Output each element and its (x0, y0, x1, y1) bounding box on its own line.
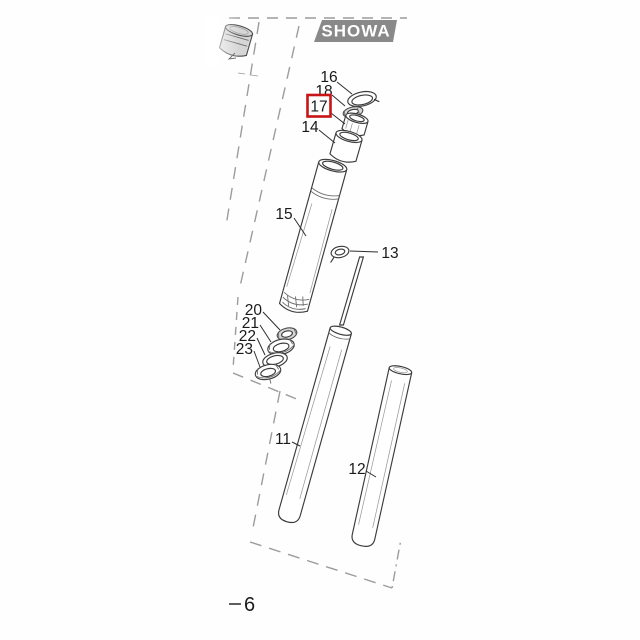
exploded-fork-diagram: SHOWA (0, 0, 640, 640)
highlight-callout-17[interactable]: 17 (308, 95, 331, 117)
part-label-14[interactable]: 14 (301, 119, 319, 136)
part-label-15[interactable]: 15 (275, 206, 292, 223)
showa-badge-label: SHOWA (321, 22, 390, 41)
parts-diagram-page: SHOWA (0, 0, 640, 640)
part-label-23[interactable]: 23 (236, 341, 253, 358)
part-label-13[interactable]: 13 (381, 245, 398, 262)
part-13-stopper-ring (328, 245, 350, 262)
part-label-12[interactable]: 12 (348, 461, 365, 478)
part-12-slider-tube (350, 364, 412, 548)
part-label-11[interactable]: 11 (275, 431, 291, 448)
assembly-ref-label-6: 6 (244, 594, 255, 616)
part-16-cap-washer (346, 89, 379, 109)
part-15-fork-tube (278, 157, 348, 316)
part-label-17[interactable]: 17 (310, 99, 327, 116)
part-11-push-rod (340, 257, 364, 325)
showa-badge: SHOWA (314, 20, 397, 42)
part-11-damper-tube (276, 324, 352, 525)
